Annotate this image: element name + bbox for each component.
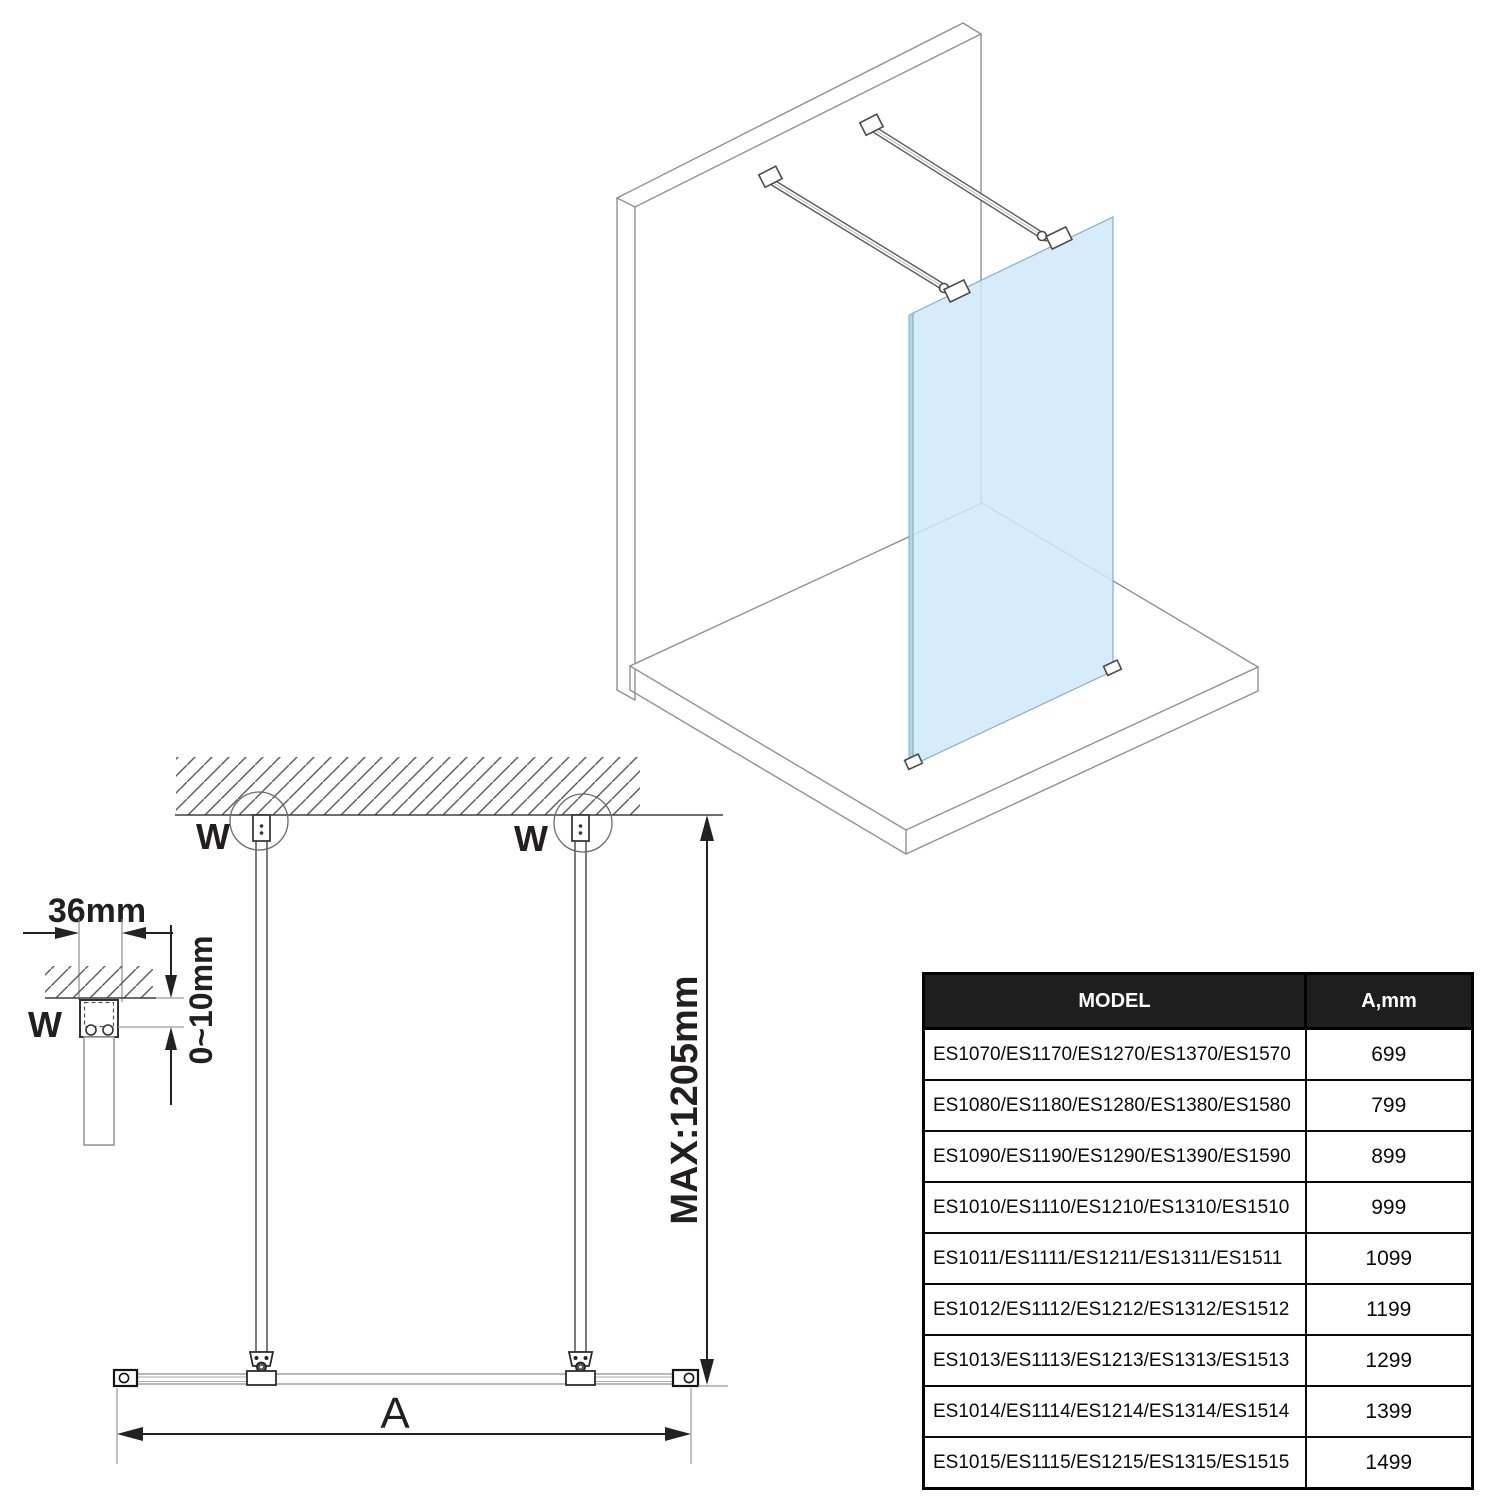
max-height-label: MAX:1205mm <box>664 975 706 1224</box>
table-row: ES1080/ES1180/ES1280/ES1380/ES1580 799 <box>924 1080 1473 1131</box>
model-cell: ES1080/ES1180/ES1280/ES1380/ES1580 <box>924 1080 1306 1131</box>
a-value-cell: 1199 <box>1306 1284 1473 1335</box>
support-bar <box>860 114 1072 249</box>
model-cell: ES1010/ES1110/ES1210/ES1310/ES1510 <box>924 1182 1306 1233</box>
model-cell: ES1012/ES1112/ES1212/ES1312/ES1512 <box>924 1284 1306 1335</box>
table-row: ES1015/ES1115/ES1215/ES1315/ES1515 1499 <box>924 1437 1473 1489</box>
table-row: ES1013/ES1113/ES1213/ES1313/ES1513 1299 <box>924 1335 1473 1386</box>
glass-edge-strip <box>117 1374 691 1384</box>
dimension-gap: 0~10mm <box>165 925 219 1105</box>
model-cell: ES1015/ES1115/ES1215/ES1315/ES1515 <box>924 1437 1306 1489</box>
spec-table: MODEL A,mm ES1070/ES1170/ES1270/ES1370/E… <box>922 972 1474 1490</box>
wall-hatch <box>176 757 640 815</box>
table-row: ES1010/ES1110/ES1210/ES1310/ES1510 999 <box>924 1182 1473 1233</box>
spec-table-header-row: MODEL A,mm <box>924 974 1473 1029</box>
support-bar <box>759 166 970 302</box>
table-row: ES1011/ES1111/ES1211/ES1311/ES1511 1099 <box>924 1233 1473 1284</box>
wall-bracket-detail <box>80 1000 118 1037</box>
model-cell: ES1090/ES1190/ES1290/ES1390/ES1590 <box>924 1131 1306 1182</box>
w-label-right: W <box>514 818 548 859</box>
a-value-cell: 1399 <box>1306 1386 1473 1437</box>
a-value-cell: 699 <box>1306 1029 1473 1081</box>
w-label-detail: W <box>28 1004 62 1045</box>
a-value-cell: 799 <box>1306 1080 1473 1131</box>
table-row: ES1070/ES1170/ES1270/ES1370/ES1570 699 <box>924 1029 1473 1081</box>
bracket-width-label: 36mm <box>48 892 146 930</box>
post-joint <box>250 1352 592 1372</box>
dimension-a: A <box>117 1388 691 1464</box>
w-label-left: W <box>196 816 230 857</box>
table-row: ES1014/ES1114/ES1214/ES1314/ES1514 1399 <box>924 1386 1473 1437</box>
table-row: ES1012/ES1112/ES1212/ES1312/ES1512 1199 <box>924 1284 1473 1335</box>
ceiling-hatch-detail <box>45 966 153 998</box>
model-cell: ES1013/ES1113/ES1213/ES1313/ES1513 <box>924 1335 1306 1386</box>
dimension-max-height: MAX:1205mm <box>664 815 728 1386</box>
model-cell: ES1011/ES1111/ES1211/ES1311/ES1511 <box>924 1233 1306 1284</box>
a-value-cell: 899 <box>1306 1131 1473 1182</box>
model-column-header: MODEL <box>924 974 1306 1029</box>
a-value-cell: 999 <box>1306 1182 1473 1233</box>
a-value-cell: 1299 <box>1306 1335 1473 1386</box>
post-profile-detail <box>84 1037 114 1145</box>
support-post <box>256 815 586 1352</box>
gap-label: 0~10mm <box>183 936 219 1065</box>
isometric-view <box>617 23 1258 854</box>
model-cell: ES1070/ES1170/ES1270/ES1370/ES1570 <box>924 1029 1306 1081</box>
plan-view: W W <box>114 757 728 1464</box>
a-mm-column-header: A,mm <box>1306 974 1473 1029</box>
a-value-cell: 1099 <box>1306 1233 1473 1284</box>
model-cell: ES1014/ES1114/ES1214/ES1314/ES1514 <box>924 1386 1306 1437</box>
a-label: A <box>380 1389 410 1438</box>
bracket-detail-view: 36mm W <box>23 892 219 1145</box>
table-row: ES1090/ES1190/ES1290/ES1390/ES1590 899 <box>924 1131 1473 1182</box>
technical-drawing-page: W W <box>0 0 1500 1500</box>
a-value-cell: 1499 <box>1306 1437 1473 1489</box>
